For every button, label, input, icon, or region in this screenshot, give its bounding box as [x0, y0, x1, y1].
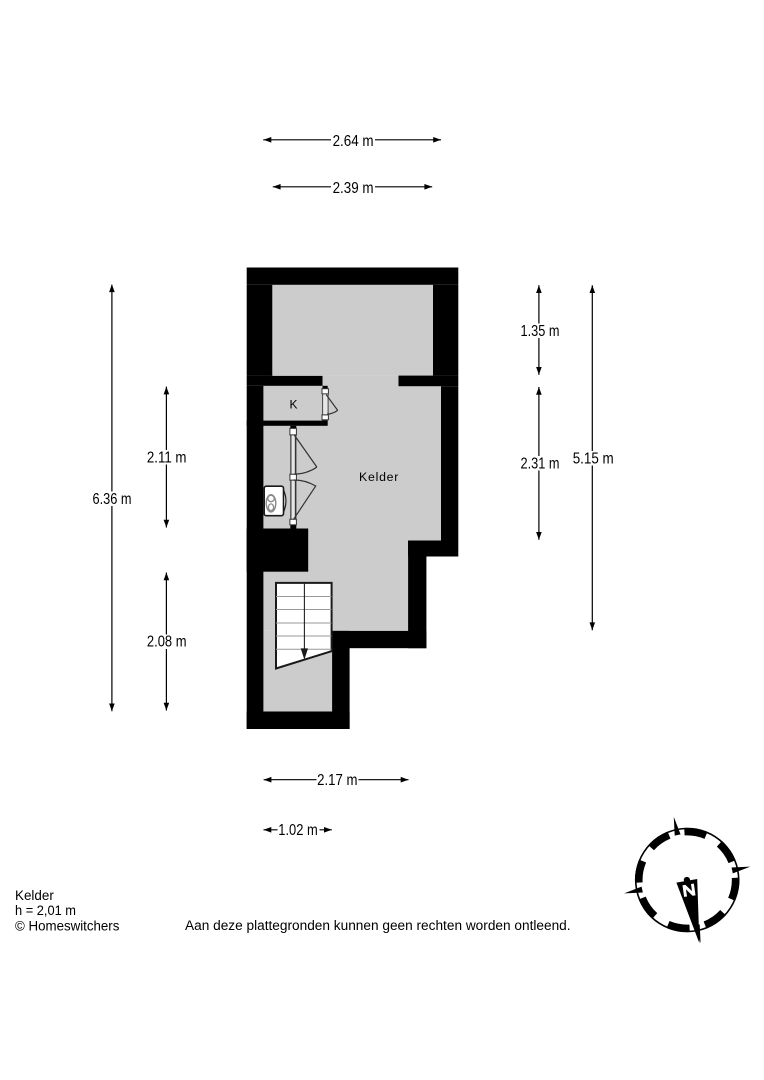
- svg-text:1.35 m: 1.35 m: [521, 323, 560, 340]
- svg-text:© Homeswitchers: © Homeswitchers: [15, 918, 119, 933]
- svg-text:6.36 m: 6.36 m: [93, 491, 132, 508]
- svg-text:5.15 m: 5.15 m: [573, 450, 614, 467]
- svg-text:h = 2,01 m: h = 2,01 m: [15, 903, 76, 918]
- svg-text:2.08 m: 2.08 m: [147, 634, 187, 651]
- svg-text:Aan deze plattegronden kunnen: Aan deze plattegronden kunnen geen recht…: [185, 918, 571, 933]
- svg-text:Kelder: Kelder: [15, 888, 54, 903]
- svg-text:K: K: [289, 398, 297, 412]
- svg-text:1.02 m: 1.02 m: [278, 822, 317, 839]
- svg-text:2.17 m: 2.17 m: [317, 772, 357, 789]
- svg-text:2.31 m: 2.31 m: [521, 455, 560, 472]
- svg-text:2.64 m: 2.64 m: [333, 133, 374, 150]
- svg-text:2.39 m: 2.39 m: [333, 180, 374, 197]
- svg-text:Kelder: Kelder: [359, 470, 398, 484]
- svg-text:2.11 m: 2.11 m: [147, 450, 187, 467]
